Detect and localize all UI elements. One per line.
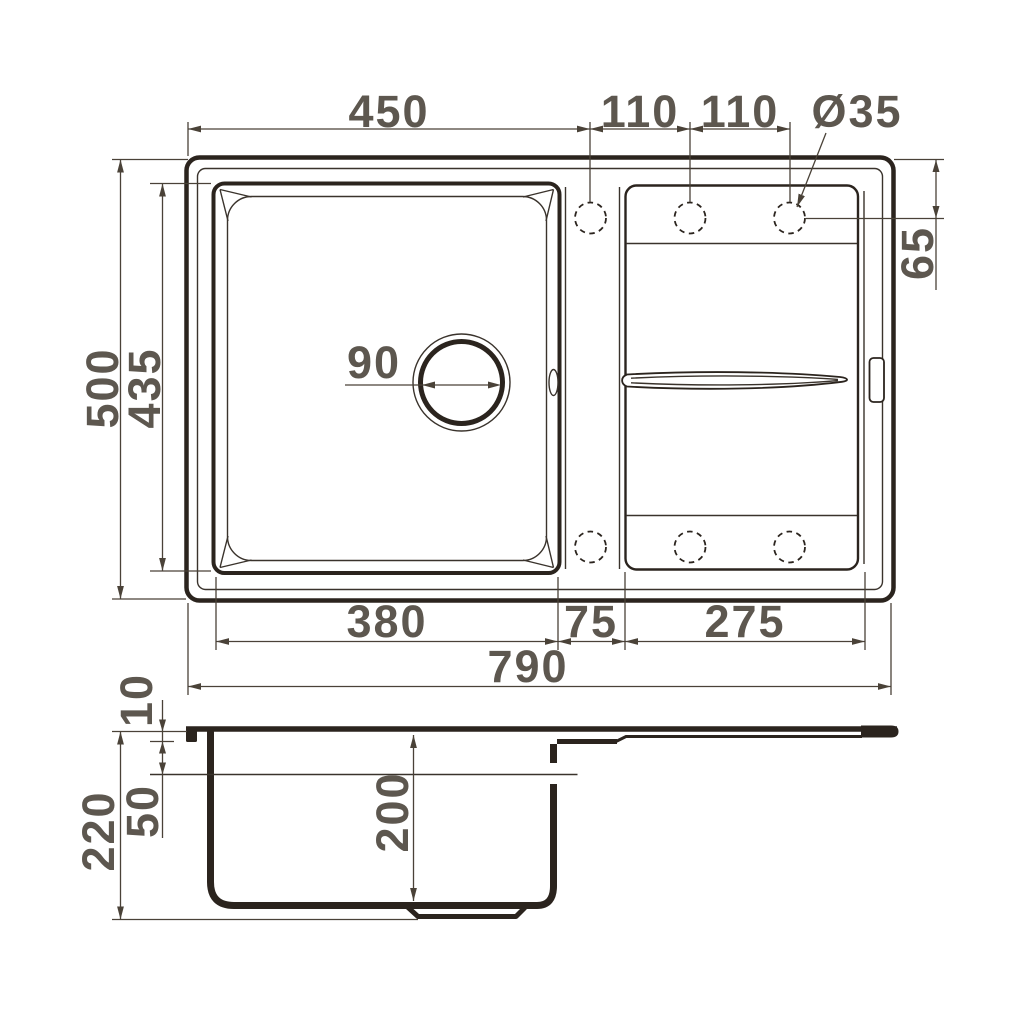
label-110a: 110 [601,86,680,137]
faucet-hole-2 [675,203,706,234]
label-65: 65 [892,226,943,280]
bowl-chamfer-bottom-left [220,536,252,568]
label-275: 275 [704,596,785,647]
accessory-slot [870,358,885,402]
drainboard-channel [622,372,847,389]
label-450: 450 [348,86,429,137]
label-435: 435 [119,347,170,428]
bowl-chamfer-bottom-right [523,536,554,568]
faucet-hole-4 [575,532,606,563]
label-110b: 110 [701,86,780,137]
dim-90-arrow-left [422,382,435,389]
dim-50-arrow-bottom [159,763,166,775]
label-220: 220 [73,790,124,871]
label-200: 200 [367,771,418,852]
rim-left-lip [186,729,197,742]
faucet-hole-1 [575,203,606,234]
label-790: 790 [487,641,568,692]
dimensions [112,122,944,920]
faucet-hole-3 [774,203,805,234]
drain-outer-circle [413,334,510,431]
label-hole-diameter: Ø35 [811,86,902,137]
dim-65-arrow-top [933,160,940,172]
dim-65-arrow-bottom [933,206,940,218]
hole-diameter-leader [797,133,826,207]
dim-10-arrow-bottom [159,742,166,754]
label-380: 380 [346,596,427,647]
dim-90-arrow-right [488,382,501,389]
drainboard-profile-line [616,737,862,742]
bowl-chamfer-top-left [220,190,252,222]
label-75: 75 [564,596,618,647]
sink-dimension-drawing: 450 110 110 Ø35 65 500 435 90 380 75 275… [0,0,1024,1024]
sink-dimension-drawing-page: 450 110 110 Ø35 65 500 435 90 380 75 275… [0,0,1024,1024]
bowl-chamfer-top-right [523,190,554,222]
faucet-hole-6 [774,532,805,563]
label-10: 10 [111,673,162,727]
side-view [150,726,899,917]
faucet-hole-5 [675,532,706,563]
wall-break [548,763,560,784]
overflow-notch [549,370,558,396]
dimension-labels: 450 110 110 Ø35 65 500 435 90 380 75 275… [73,86,943,872]
label-50: 50 [117,784,168,838]
rim-right-cap [861,726,899,738]
top-view [187,158,894,601]
label-90: 90 [347,337,401,388]
top-extension-lines [188,122,790,202]
